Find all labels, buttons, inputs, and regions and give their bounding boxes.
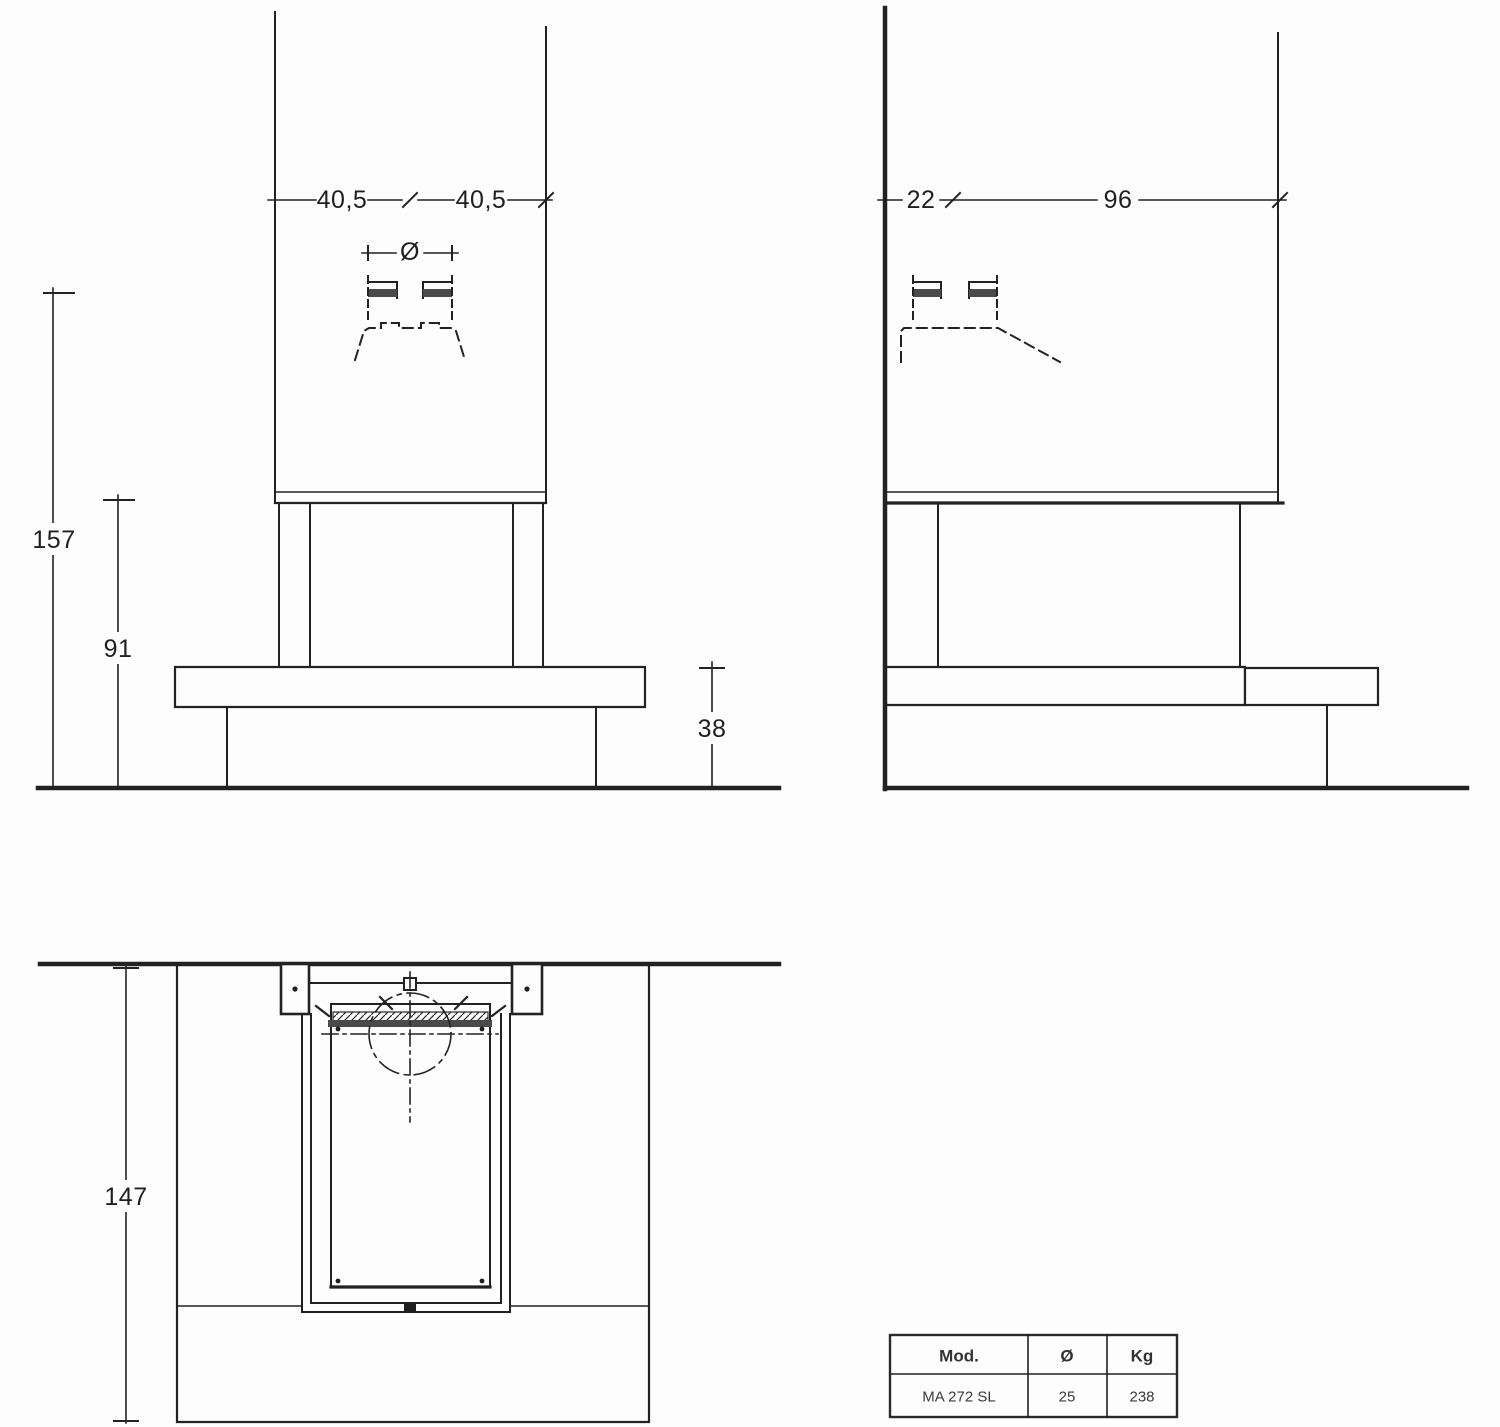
dim-label-flue-diameter: Ø	[400, 238, 420, 266]
fireplace-dimension-drawing: 40,5 40,5 Ø 157 91	[0, 0, 1500, 1427]
front-bench-shelf	[175, 667, 645, 707]
front-collar-bar-right	[423, 289, 452, 297]
front-total-height-dimension: 157	[28, 288, 80, 787]
dim-label-total-height: 157	[32, 526, 75, 554]
front-hood-top-profile-dashed	[355, 323, 465, 360]
front-width-dimension: 40,5 40,5	[268, 186, 553, 214]
front-hood-height-dimension: 91	[98, 495, 138, 787]
dim-label-wall-gap: 22	[907, 186, 936, 214]
plan-bolt-right	[480, 1027, 485, 1032]
spec-value-weight: 238	[1129, 1389, 1154, 1406]
side-depth-dimension: 22 96	[878, 186, 1287, 214]
plan-bolt-bottom-left	[336, 1279, 341, 1284]
front-bench-height-dimension: 38	[692, 662, 732, 787]
dim-label-depth: 96	[1104, 186, 1133, 214]
spec-value-diameter: 25	[1059, 1389, 1076, 1406]
dim-label-front-width-right: 40,5	[456, 186, 507, 214]
side-flue-collar-dashed	[901, 276, 1060, 362]
side-collar-bar-right	[969, 289, 997, 297]
plan-depth-dimension: 147	[100, 966, 152, 1423]
plan-bracket-left-bolt	[292, 986, 297, 991]
front-flue-diameter-dimension: Ø	[362, 238, 458, 266]
technical-drawing-page: 40,5 40,5 Ø 157 91	[0, 0, 1500, 1427]
side-collar-bar-left	[913, 289, 941, 297]
side-firebox-edges	[938, 504, 1240, 667]
dim-label-front-width-left: 40,5	[317, 186, 368, 214]
plan-flue-centerlines	[322, 972, 498, 1122]
side-hood-top-profile-dashed	[901, 328, 1060, 362]
side-shelf-extension	[1245, 668, 1378, 705]
plan-bolt-bottom-right	[480, 1279, 485, 1284]
dim-label-bench-height: 38	[698, 715, 727, 743]
plan-view: 147	[40, 964, 779, 1423]
front-base-plinth	[227, 707, 596, 787]
spec-table: Mod. Ø Kg MA 272 SL 25 238	[890, 1335, 1177, 1417]
side-elevation-view: 22 96	[878, 8, 1467, 789]
plan-bottom-center-notch	[404, 1303, 416, 1312]
plan-frame-walls	[302, 1014, 510, 1312]
plan-bracket-right-bolt	[524, 986, 529, 991]
plan-firebox-frame	[302, 1004, 510, 1312]
dim-label-plan-depth: 147	[104, 1183, 147, 1211]
spec-header-model: Mod.	[939, 1347, 979, 1366]
side-shelf-main	[887, 667, 1245, 705]
front-collar-bar-left	[368, 289, 397, 297]
front-flue-collar-dashed	[355, 276, 465, 360]
dim-label-hood-height: 91	[104, 635, 133, 663]
front-elevation-view: 40,5 40,5 Ø 157 91	[28, 12, 779, 788]
plan-bolt-left	[336, 1027, 341, 1032]
spec-value-model: MA 272 SL	[922, 1389, 995, 1406]
front-width-dim-center-slash	[403, 193, 417, 207]
side-bench-shelf	[887, 667, 1378, 705]
spec-header-weight: Kg	[1131, 1347, 1154, 1366]
spec-header-diameter: Ø	[1060, 1347, 1073, 1366]
front-firebox-jambs	[279, 503, 543, 667]
